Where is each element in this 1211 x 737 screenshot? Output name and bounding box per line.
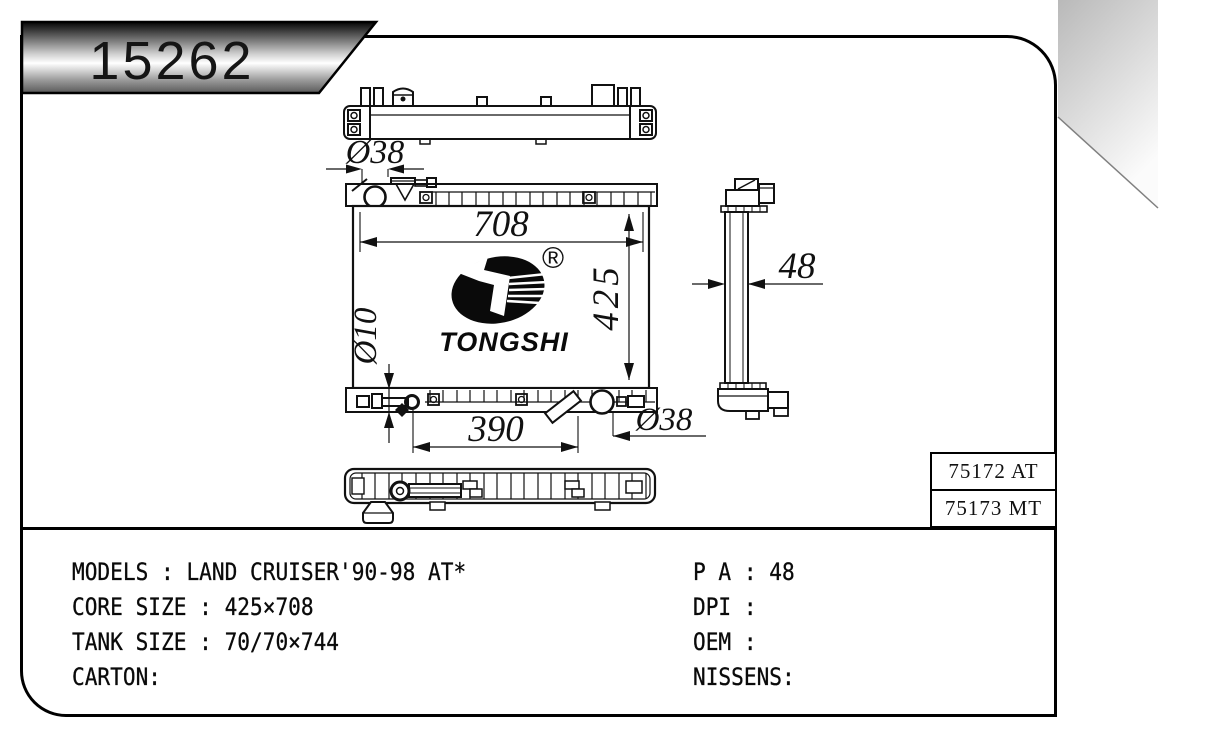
top-outlet-stub [592, 85, 614, 107]
spec-oem: OEM : [693, 625, 795, 660]
corner-fold-shape [1058, 0, 1158, 208]
spec-core-size: CORE SIZE : 425×708 [72, 590, 466, 625]
spec-block-right: P A : 48 DPI : OEM : NISSENS: [693, 555, 809, 695]
dim-drain-label: Ø10 [348, 307, 384, 365]
part-reference-table: 75172 AT 75173 MT [930, 452, 1057, 528]
logo-wordmark: TONGSHI [439, 327, 569, 357]
outlet-port [591, 391, 614, 414]
badge-part-number: 15262 [89, 31, 254, 91]
front-view: ® TONGSHI 708 425 Ø10 [346, 178, 706, 453]
spec-nissens: NISSENS: [693, 660, 795, 695]
corner-decoration [1056, 0, 1160, 210]
radiator-drawing: Ø38 [320, 78, 860, 558]
datasheet-page: 15262 [0, 0, 1211, 737]
spec-models: MODELS : LAND CRUISER'90-98 AT* [72, 555, 466, 590]
side-column [725, 212, 748, 383]
spec-block-left: MODELS : LAND CRUISER'90-98 AT* CORE SIZ… [72, 555, 520, 695]
dim-core-height-label: 425 [586, 263, 627, 331]
table-row: 75172 AT [932, 454, 1055, 491]
side-view: 48 [692, 179, 823, 419]
dim-top-inlet-label: Ø38 [345, 134, 405, 171]
dim-side-width-label: 48 [779, 246, 817, 287]
registered-mark: ® [542, 242, 564, 275]
table-row: 75173 MT [932, 491, 1055, 526]
top-header [346, 184, 657, 206]
spec-tank-size: TANK SIZE : 70/70×744 [72, 625, 466, 660]
dim-side-width: 48 [692, 246, 823, 289]
dim-bottom-outlet-label: Ø38 [635, 402, 693, 438]
spec-pa: P A : 48 [693, 555, 795, 590]
spec-dpi: DPI : [693, 590, 795, 625]
dim-core-width-label: 708 [473, 204, 529, 245]
spec-carton: CARTON: [72, 660, 466, 695]
inlet-port [365, 187, 386, 208]
dim-bottom-span-label: 390 [467, 409, 524, 450]
bottom-tank-view [345, 469, 655, 523]
